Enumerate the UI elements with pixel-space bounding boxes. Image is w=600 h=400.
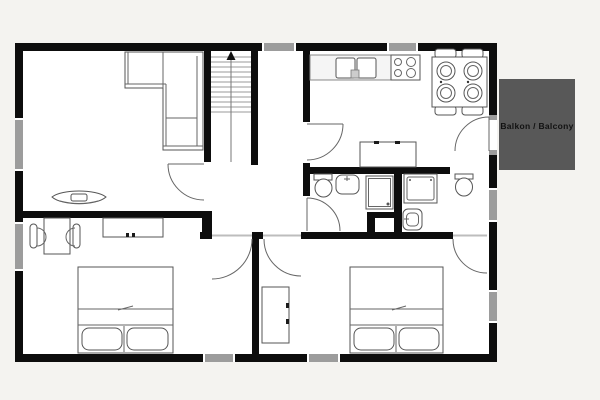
hall-wall-segment-a <box>200 232 212 239</box>
bathroom-divider-wall <box>394 174 402 239</box>
bathroom-sink <box>336 175 359 194</box>
duct-niche <box>375 218 394 232</box>
dresser <box>103 218 163 237</box>
balcony-label: Balkon / Balcony <box>500 121 573 131</box>
floor-plan-drawing: Balkon / Balcony <box>0 0 600 400</box>
balcony-door-opening <box>489 115 497 155</box>
dining-chair-seat <box>464 62 482 80</box>
dining-chair-seat <box>437 62 455 80</box>
window-right-lower <box>489 290 497 323</box>
floor-plan-page: Balkon / Balcony <box>0 0 600 400</box>
pillow <box>127 328 168 350</box>
window-top-hall <box>262 43 296 51</box>
drain-icon <box>387 203 390 206</box>
bedroom-divider-wall <box>252 232 259 355</box>
stairwell-wall-left <box>204 51 211 162</box>
outer-wall-left <box>15 43 23 362</box>
pillow <box>354 328 394 350</box>
small-sink <box>403 209 422 230</box>
double-bed <box>78 267 173 353</box>
duct-wall-top <box>367 212 402 218</box>
bathroom-wall-top <box>303 167 450 174</box>
dining-set <box>432 49 487 115</box>
hall-wall-segment-c <box>301 232 453 239</box>
dining-chair-seat <box>464 84 482 102</box>
kitchen-wall-upper <box>303 51 310 122</box>
window-bottom-bedroom2 <box>307 354 340 362</box>
pillow <box>82 328 122 350</box>
window-left-lower <box>15 222 23 271</box>
sideboard <box>360 141 416 167</box>
washing-machine <box>404 174 437 203</box>
window-right-upper <box>489 188 497 222</box>
outer-wall-top <box>15 43 497 51</box>
stairwell-wall-right <box>251 51 258 165</box>
window-left-upper <box>15 118 23 171</box>
wardrobe <box>262 287 289 343</box>
double-bed <box>350 267 443 353</box>
toilet <box>314 174 332 197</box>
outer-wall-bottom <box>15 354 497 362</box>
pillow <box>399 328 439 350</box>
window-bottom-bedroom1 <box>203 354 235 362</box>
living-room-south-wall <box>23 211 202 218</box>
stove <box>391 55 420 80</box>
faucet-icon <box>351 70 359 78</box>
shower <box>366 176 393 209</box>
window-top-kitchen <box>387 43 418 51</box>
balcony: Balkon / Balcony <box>499 79 575 170</box>
dining-chair-seat <box>437 84 455 102</box>
coffee-table <box>52 191 106 204</box>
toilet <box>455 174 473 196</box>
